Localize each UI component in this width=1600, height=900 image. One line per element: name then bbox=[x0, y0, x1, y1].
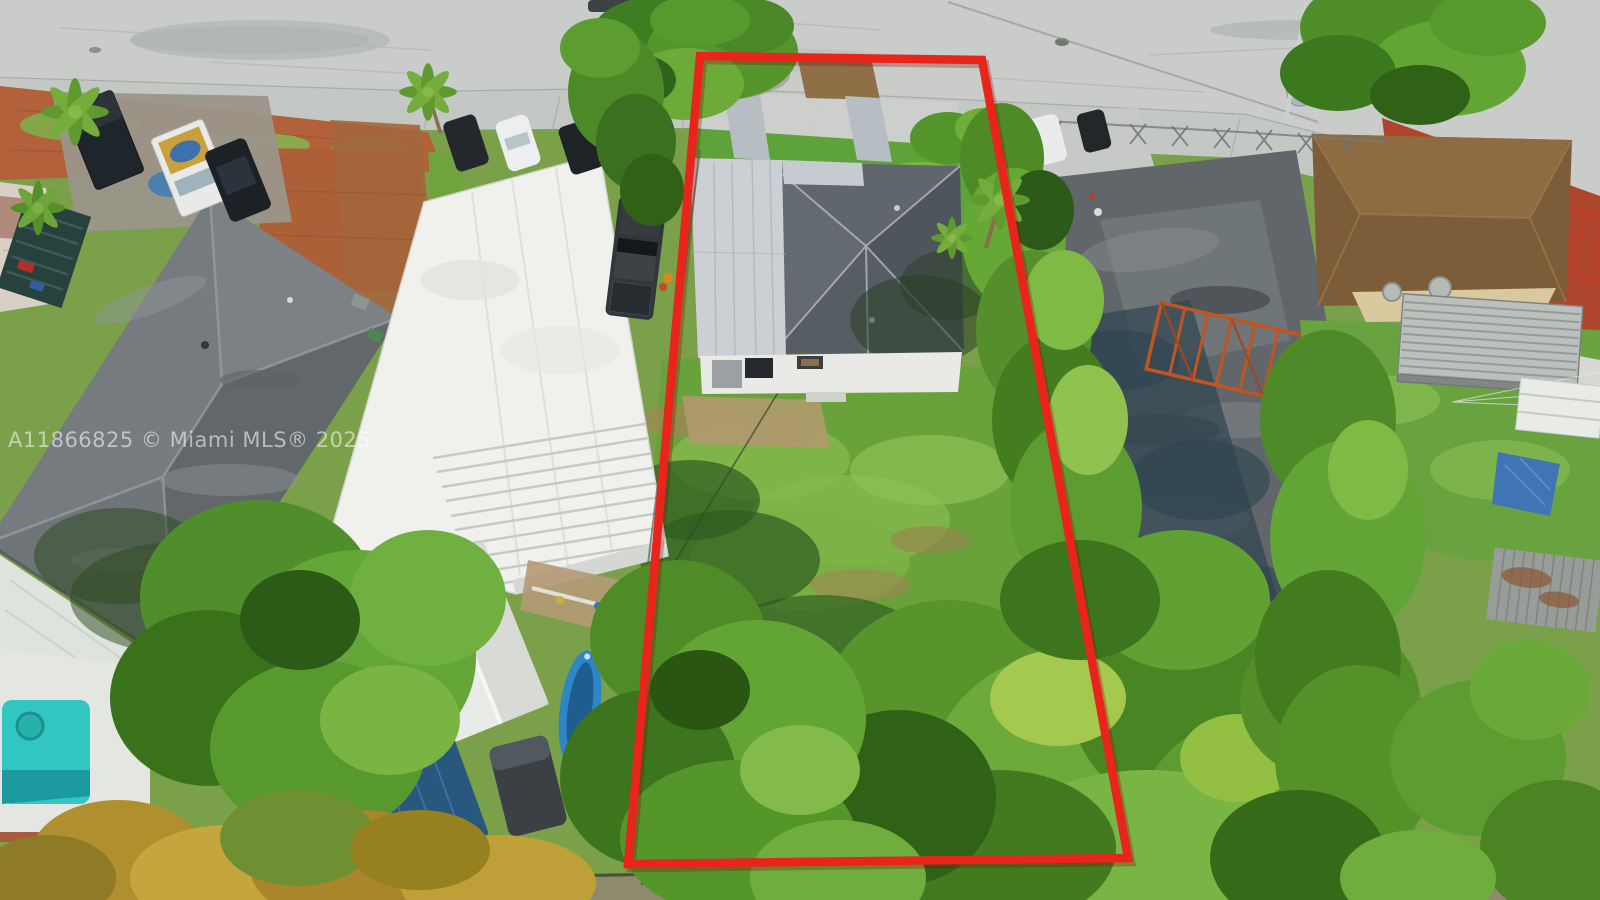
mls-watermark: A11866825 © Miami MLS® 2025 bbox=[8, 428, 371, 452]
aerial-photo: A11866825 © Miami MLS® 2025 bbox=[0, 0, 1600, 900]
palm-tree bbox=[931, 217, 973, 259]
palm-tree bbox=[11, 181, 65, 235]
dirt-patch bbox=[682, 396, 830, 448]
palm-tree bbox=[41, 78, 109, 146]
subject-house bbox=[690, 158, 1000, 402]
pool-float bbox=[17, 713, 43, 739]
carport bbox=[1397, 294, 1583, 394]
satellite-dish bbox=[1383, 283, 1401, 301]
front-window bbox=[745, 358, 773, 378]
